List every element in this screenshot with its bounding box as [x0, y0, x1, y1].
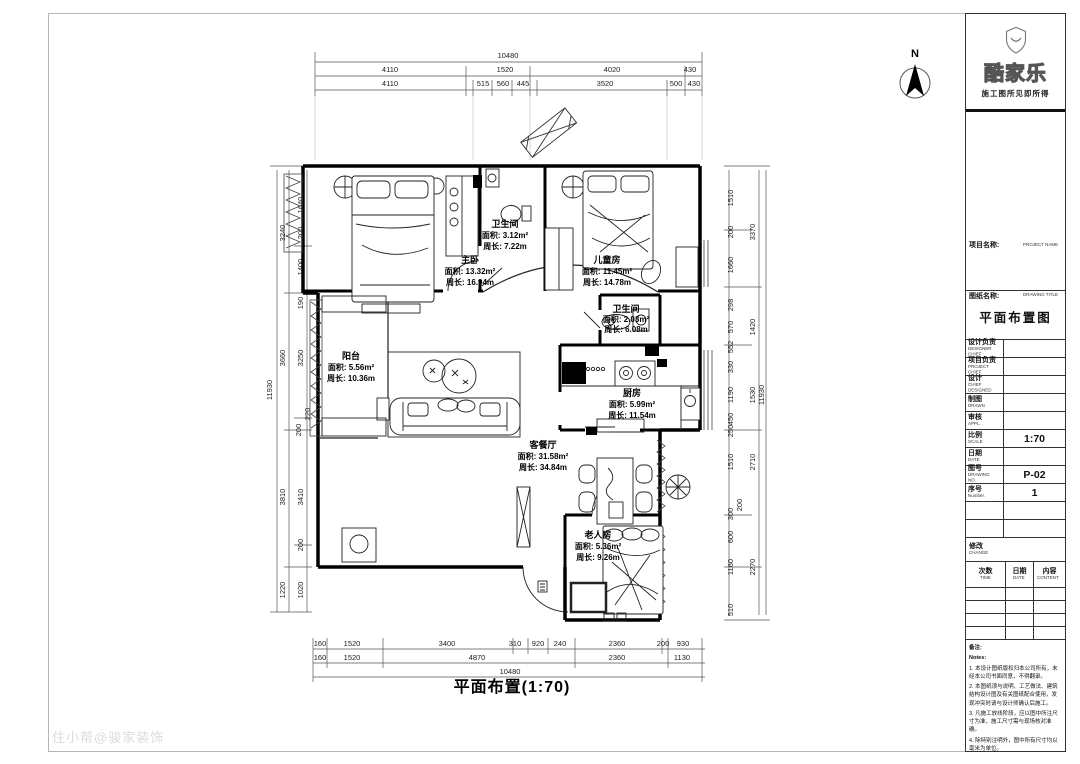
entry-column	[517, 487, 530, 547]
brand-tagline: 施工图所见即所得	[982, 88, 1050, 99]
dim-label: 2360	[609, 639, 626, 648]
row-value	[1004, 340, 1065, 357]
change-empty-row	[966, 627, 1065, 640]
dim-label: 920	[532, 639, 545, 648]
north-arrow: N	[900, 48, 930, 98]
dim-label: 430	[684, 65, 697, 74]
tb-row-designer-chief: 设计负责DESIGNER CHIEF	[966, 340, 1065, 358]
dim-label: 2710	[748, 454, 757, 471]
dim-label: 510	[726, 604, 735, 617]
dim-label: 450	[726, 413, 735, 426]
dim-label: 10480	[500, 667, 521, 676]
dim-label: 330	[726, 361, 735, 374]
dim-label: 2360	[609, 653, 626, 662]
tb-row-date: 日期DATE	[966, 448, 1065, 466]
note-item: 2. 本图纸须与说明、工艺做法、建筑结构设计图及有关图纸配合使用，发现冲突时请与…	[969, 683, 1062, 708]
dim-label: 3250	[296, 350, 305, 367]
change-header: 修改 CHANGE	[966, 538, 1065, 562]
dim-label: 1160	[726, 559, 735, 575]
project-name-space	[966, 112, 1065, 234]
north-needle	[906, 64, 924, 96]
dim-label: 300	[726, 508, 735, 521]
project-label: 项目名称:	[969, 242, 999, 250]
row-label-en: SCALE	[968, 440, 998, 445]
tb-row-project-chief: 项目负责PROJECT CHIEF	[966, 358, 1065, 376]
col-date-en: DATE	[1013, 576, 1025, 581]
drawing-number-value: P-02	[1004, 466, 1065, 483]
note-item: 4. 除特别注明外，图中所有尺寸均以毫米为单位。	[969, 737, 1062, 752]
dim-label: 430	[688, 79, 701, 88]
dim-label: 200	[657, 639, 670, 648]
room-name: 阳台	[342, 350, 360, 361]
dim-label: 1510	[726, 454, 735, 471]
dim-label: 1520	[344, 639, 361, 648]
dim-label: 570	[726, 321, 735, 334]
dim-label: 11930	[265, 380, 274, 400]
room-perimeter: 周长: 6.08m	[604, 324, 648, 334]
dim-label: 3410	[296, 489, 305, 506]
change-empty-row	[966, 614, 1065, 627]
dim-label: 1510	[726, 190, 735, 207]
notes-label: 备注:	[969, 644, 1062, 652]
dim-label: 600	[726, 531, 735, 544]
kids-ceiling-fan	[562, 176, 584, 198]
row-value	[1004, 394, 1065, 411]
dim-label: 200	[735, 499, 744, 512]
tb-row-approval: 审核APPL.	[966, 412, 1065, 430]
drawing-title-label-en: DRAWING TITLE	[1023, 293, 1058, 298]
dim-label: 250	[726, 425, 735, 438]
dim-label: 1530	[748, 387, 757, 404]
row-value	[1004, 376, 1065, 393]
dim-label: 160	[314, 653, 327, 662]
room-perimeter: 周长: 7.22m	[483, 241, 527, 251]
room-perimeter: 周长: 10.36m	[327, 373, 375, 383]
dim-label: 190	[296, 297, 305, 310]
dim-label: 4020	[604, 65, 621, 74]
dim-label: 515	[477, 79, 490, 88]
dim-label: 200	[296, 539, 305, 552]
kids-desk	[676, 247, 698, 287]
room-name: 厨房	[623, 387, 641, 398]
room-name: 老人房	[583, 529, 611, 540]
dim-label: 1520	[497, 65, 514, 74]
room-perimeter: 周长: 11.54m	[608, 410, 656, 420]
notes-label-en: Notes:	[969, 654, 1062, 662]
project-blank	[966, 258, 1065, 290]
elder-cabinet	[571, 583, 606, 612]
room-area: 面积: 5.99m²	[609, 399, 656, 409]
dim-label: 160	[314, 639, 327, 648]
dim-label: 310	[509, 639, 522, 648]
north-label: N	[911, 48, 919, 60]
scale-value: 1:70	[1004, 430, 1065, 447]
dim-label: 3520	[597, 79, 614, 88]
dim-label: 1520	[344, 653, 361, 662]
wall-pier	[377, 398, 389, 420]
dim-label: 3240	[278, 225, 287, 242]
tb-row-scale: 比例SCALE 1:70	[966, 430, 1065, 448]
room-area: 面积: 3.12m²	[482, 230, 529, 240]
tb-row-empty	[966, 520, 1065, 538]
tb-row-designer: 设计CHIEF DESIGNED	[966, 376, 1065, 394]
note-item: 3. 凡施工放线阶段，应以图中所注尺寸为准，施工尺寸需与现场核对准确。	[969, 710, 1062, 735]
room-area: 面积: 2.03m²	[603, 314, 650, 324]
dim-label: 1660	[726, 257, 735, 274]
side-cabinet	[342, 528, 376, 562]
dim-label: 1130	[674, 653, 690, 662]
entry-icon	[538, 581, 547, 592]
project-name-row: 项目名称: PROJECT NAME	[966, 234, 1065, 258]
dim-label: 3400	[439, 639, 456, 648]
title-block: 酷家乐 施工图所见即所得 项目名称: PROJECT NAME 图纸名称: DR…	[965, 13, 1066, 752]
kitchen-stove	[615, 361, 655, 386]
room-name: 儿童房	[592, 254, 620, 265]
sofa	[390, 398, 520, 435]
plant	[666, 475, 690, 499]
tb-row-serial: 序号Number. 1	[966, 484, 1065, 502]
room-area: 面积: 5.56m²	[328, 362, 375, 372]
dim-label: 1420	[748, 319, 757, 336]
dim-label: 4110	[382, 65, 398, 74]
dim-label: 240	[554, 639, 567, 648]
drawing-title-cell: 图纸名称: DRAWING TITLE 平面布置图	[966, 290, 1065, 340]
room-area: 面积: 31.58m²	[518, 451, 569, 461]
dim-label: 1220	[278, 582, 287, 599]
room-name: 客餐厅	[528, 439, 556, 450]
dim-label: 2270	[748, 559, 757, 576]
room-name: 卫生间	[612, 303, 639, 314]
dim-label: 930	[677, 639, 690, 648]
kids-wardrobe	[545, 228, 573, 290]
row-value	[1004, 358, 1065, 375]
kitchen-sink	[681, 388, 700, 420]
living-rug-plants	[423, 359, 476, 393]
project-label-en: PROJECT NAME	[1023, 244, 1058, 249]
floor-plan-svg: 10480 4110 1520 4020 430 4110 515 560 44…	[0, 0, 1080, 764]
row-label-en: DRAWN	[968, 404, 998, 409]
dim-label: 3810	[278, 489, 287, 506]
row-label-en: PROJECT CHIEF	[968, 366, 998, 376]
row-label-en: Number.	[968, 494, 998, 499]
row-label-en: DATE	[968, 458, 998, 463]
dim-label: 298	[726, 299, 735, 312]
change-columns: 次数TIME 日期DATE 内容CONTENT	[966, 562, 1065, 588]
dim-label: 552	[726, 341, 735, 354]
col-times-en: TIME	[980, 576, 991, 581]
dim-label: 1020	[296, 582, 305, 599]
room-name: 主卧	[461, 254, 479, 265]
change-label-en: CHANGE	[969, 551, 1053, 556]
row-value	[1004, 448, 1065, 465]
elder-bed	[603, 526, 663, 614]
notes-section: 备注: Notes: 1. 本设计图纸版权归本公司所有，未经本公司书面同意，不得…	[966, 640, 1065, 751]
dim-label: 4110	[382, 79, 398, 88]
dim-label: 10480	[498, 51, 519, 60]
tb-row-drawing-no: 图号DRAWING NO. P-02	[966, 466, 1065, 484]
logo-area: 酷家乐 施工图所见即所得	[966, 14, 1065, 112]
row-label-en: DESIGNER CHIEF	[968, 348, 998, 358]
dim-label: 560	[497, 79, 510, 88]
change-empty-row	[966, 588, 1065, 601]
serial-value: 1	[1004, 484, 1065, 501]
dim-label: 3370	[748, 224, 757, 241]
tb-row-empty	[966, 502, 1065, 520]
room-perimeter: 周长: 34.84m	[519, 462, 567, 472]
bath1-sink	[486, 169, 499, 187]
drawing-caption: 平面布置(1:70)	[454, 677, 571, 696]
dim-label: 200	[726, 226, 735, 239]
kitchen-knobs	[586, 367, 604, 370]
dim-label: 3660	[278, 350, 287, 367]
dim-label: 200	[294, 424, 303, 437]
room-area: 面积: 11.45m²	[582, 266, 633, 276]
dim-label: 500	[670, 79, 683, 88]
row-value	[1004, 412, 1065, 429]
drawing-title-label: 图纸名称:	[969, 293, 999, 301]
room-perimeter: 周长: 9.26m	[576, 552, 620, 562]
room-perimeter: 周长: 14.78m	[583, 277, 631, 287]
room-perimeter: 周长: 16.94m	[446, 277, 494, 287]
dim-label: 11930	[757, 385, 766, 405]
brand-name: 酷家乐	[984, 57, 1047, 86]
col-content-en: CONTENT	[1037, 576, 1059, 581]
row-label-en: APPL.	[968, 422, 998, 427]
kujiale-shield-icon	[1001, 25, 1031, 55]
row-label-en: CHIEF DESIGNED	[968, 384, 998, 394]
dim-label: 4870	[469, 653, 486, 662]
dim-label: 1190	[726, 387, 735, 403]
dim-label: 445	[517, 79, 530, 88]
room-area: 面积: 13.32m²	[445, 266, 496, 276]
flue-hatch	[521, 108, 577, 157]
row-label-en: DRAWING NO.	[968, 474, 998, 484]
watermark: 住小帮@骏家装饰	[52, 727, 164, 746]
room-area: 面积: 5.36m²	[575, 541, 622, 551]
change-empty-row	[966, 601, 1065, 614]
room-name: 卫生间	[491, 218, 518, 229]
tb-row-drawn: 制图DRAWN	[966, 394, 1065, 412]
master-bed	[352, 176, 434, 302]
note-item: 1. 本设计图纸版权归本公司所有，未经本公司书面同意，不得翻录。	[969, 665, 1062, 682]
drawing-title: 平面布置图	[969, 307, 1062, 326]
